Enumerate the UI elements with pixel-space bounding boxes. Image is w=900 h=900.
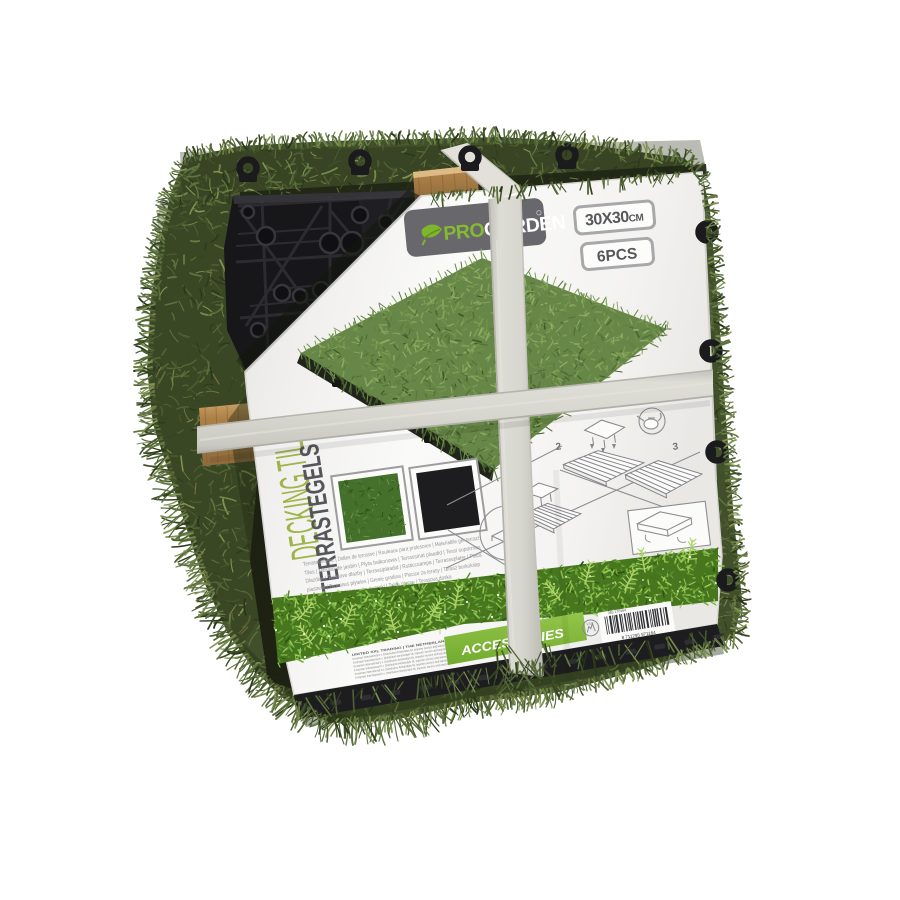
svg-text:6PCS: 6PCS xyxy=(596,245,638,265)
